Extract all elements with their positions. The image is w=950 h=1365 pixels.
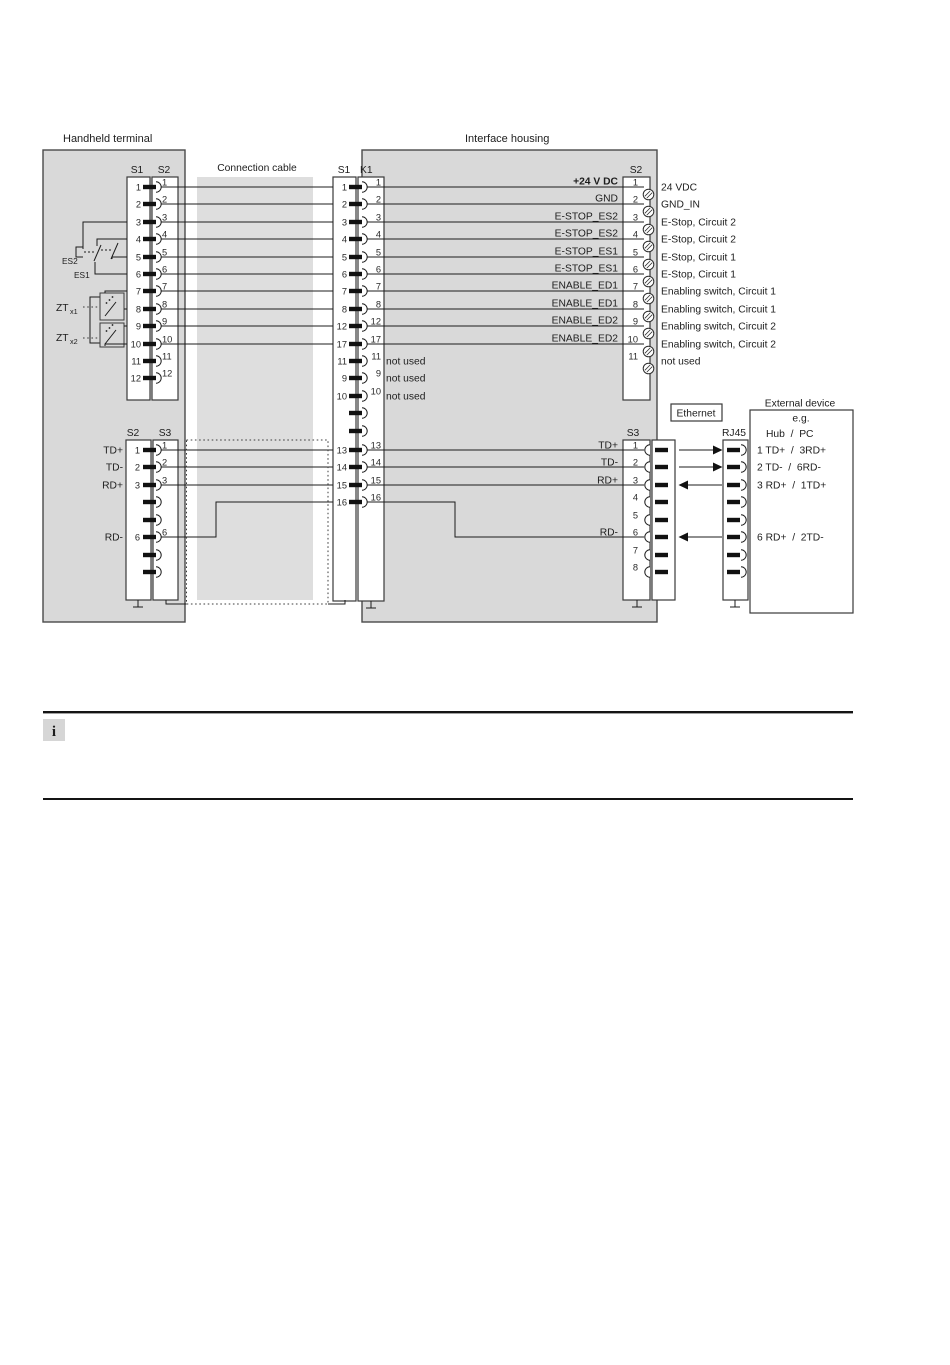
pin-number: 6 [376, 265, 381, 275]
cable-s1-header: S1 [338, 165, 351, 176]
external-pin-row: 1 TD+ / 3RD+ [757, 446, 826, 457]
zt1-label: ZT [56, 303, 69, 314]
pin-stub [143, 465, 156, 469]
pin-number: 8 [633, 300, 638, 310]
hh-s2-header: S2 [158, 165, 171, 176]
pin-stub [349, 272, 362, 276]
pin-stub [349, 448, 362, 452]
pin-number: 6 [136, 270, 141, 280]
signal-label: RD+ [597, 476, 618, 487]
pin-number: 4 [136, 235, 141, 245]
signal-label: ENABLE_ED2 [552, 334, 619, 345]
pin-number: 17 [337, 340, 347, 350]
terminal-label: Enabling switch, Circuit 1 [661, 287, 776, 298]
pin-number: 11 [131, 357, 141, 367]
pin-stub [349, 202, 362, 206]
pin-number: 6 [162, 265, 167, 275]
pin-number: 8 [162, 300, 167, 310]
pin-stub [349, 465, 362, 469]
signal-label: RD- [105, 533, 123, 544]
external-pin-row: 6 RD+ / 2TD- [757, 533, 824, 544]
pin-number: 10 [371, 387, 381, 397]
terminal-label: not used [661, 357, 701, 368]
ethernet-label: Ethernet [677, 409, 716, 420]
pin-number: 1 [633, 178, 638, 188]
pin-number: 5 [633, 511, 638, 521]
pin-number: 5 [376, 248, 381, 258]
signal-label: TD- [601, 458, 618, 469]
pin-number: 1 [376, 178, 381, 188]
screw-terminal-icon [643, 346, 654, 357]
pin-number: 9 [342, 374, 347, 384]
external-device-box [750, 410, 853, 613]
pin-stub [143, 255, 156, 259]
pin-stub [349, 220, 362, 224]
pin-number: 7 [136, 287, 141, 297]
pin-number: 1 [162, 441, 167, 451]
pin-number: 2 [162, 195, 167, 205]
screw-terminal-icon [643, 276, 654, 287]
if-s2-header: S2 [630, 165, 643, 176]
pin-number: 12 [131, 374, 141, 384]
pin-number: 10 [337, 392, 347, 402]
screw-terminal-icon [643, 328, 654, 339]
pin-stub [143, 324, 156, 328]
screw-terminal-icon [643, 293, 654, 304]
hh-s1-header: S1 [131, 165, 144, 176]
pin-number: 13 [337, 446, 347, 456]
pin-number: 3 [633, 476, 638, 486]
pin-stub [349, 483, 362, 487]
pin-number: 10 [162, 335, 172, 345]
pin-number: 3 [376, 213, 381, 223]
pin-stub [143, 535, 156, 539]
terminal-label: Enabling switch, Circuit 2 [661, 322, 776, 333]
pin-number: 15 [337, 481, 347, 491]
pin-number: 9 [162, 317, 167, 327]
es1-label: ES1 [74, 270, 90, 280]
if-s3-header: S3 [627, 428, 640, 439]
pin-number: 6 [633, 265, 638, 275]
not-used-label: not used [386, 374, 426, 385]
pin-number: 16 [371, 493, 381, 503]
pin-stub [349, 342, 362, 346]
pin-number: 10 [131, 340, 141, 350]
pin-stub [727, 518, 740, 522]
pin-number: 1 [136, 183, 141, 193]
pin-number: 3 [136, 218, 141, 228]
pin-stub [143, 359, 156, 363]
pin-stub [143, 307, 156, 311]
pin-stub [143, 220, 156, 224]
pin-number: 14 [337, 463, 347, 473]
divider-top [43, 711, 853, 713]
zt2-subscript: x2 [70, 337, 78, 346]
pin-number: 3 [162, 476, 167, 486]
screw-terminal-icon [643, 241, 654, 252]
pin-stub [727, 483, 740, 487]
pin-number: 9 [136, 322, 141, 332]
pin-number: 6 [135, 533, 140, 543]
screw-terminal-icon [643, 189, 654, 200]
pin-stub [143, 518, 156, 522]
pin-stub [727, 465, 740, 469]
pin-stub [143, 289, 156, 293]
pin-stub [655, 518, 668, 522]
pin-stub [655, 483, 668, 487]
hub-pc-header: Hub / PC [766, 429, 814, 440]
signal-label: ENABLE_ED1 [552, 299, 619, 310]
pin-number: 4 [376, 230, 381, 240]
pin-stub [655, 553, 668, 557]
pin-number: 12 [162, 369, 172, 379]
pin-number: 1 [162, 178, 167, 188]
signal-label: TD+ [103, 446, 123, 457]
pin-number: 8 [136, 305, 141, 315]
pin-number: 10 [628, 335, 638, 345]
pin-stub [143, 483, 156, 487]
pin-number: 7 [376, 282, 381, 292]
external-pin-row: 3 RD+ / 1TD+ [757, 481, 826, 492]
signal-label: ENABLE_ED1 [552, 281, 619, 292]
pin-number: 2 [633, 458, 638, 468]
not-used-label: not used [386, 357, 426, 368]
signal-label: E-STOP_ES1 [555, 247, 619, 258]
terminal-label: 24 VDC [661, 183, 698, 194]
pin-number: 3 [342, 218, 347, 228]
pin-number: 9 [633, 317, 638, 327]
ethernet-direction-arrows [679, 446, 723, 542]
pin-stub [349, 500, 362, 504]
terminal-label: E-Stop, Circuit 1 [661, 270, 736, 281]
interface-housing-title: Interface housing [465, 133, 549, 145]
pin-number: 4 [633, 230, 638, 240]
pin-number: 8 [633, 563, 638, 573]
hh-eth-s2-header: S2 [127, 428, 140, 439]
pin-number: 7 [162, 282, 167, 292]
signal-label: TD- [106, 463, 123, 474]
terminal-label: E-Stop, Circuit 1 [661, 253, 736, 264]
external-device-title: External device [765, 399, 836, 410]
pin-stub [349, 394, 362, 398]
zt2-label: ZT [56, 333, 69, 344]
pin-number: 11 [371, 352, 381, 362]
signal-label: E-STOP_ES2 [555, 229, 619, 240]
if-k1-header: K1 [360, 165, 373, 176]
pin-number: 2 [376, 195, 381, 205]
external-pin-row: 2 TD- / 6RD- [757, 463, 821, 474]
signal-label: ENABLE_ED2 [552, 316, 619, 327]
pin-stub [143, 272, 156, 276]
pin-stub [349, 255, 362, 259]
pin-stub [143, 448, 156, 452]
pin-stub [143, 376, 156, 380]
arrow-right-icon [713, 463, 723, 472]
pin-stub [349, 429, 362, 433]
es2-label: ES2 [62, 256, 78, 266]
pin-number: 8 [376, 300, 381, 310]
pin-number: 3 [135, 481, 140, 491]
pin-number: 2 [633, 195, 638, 205]
pin-number: 11 [162, 352, 172, 362]
pin-number: 4 [342, 235, 347, 245]
pin-stub [655, 535, 668, 539]
pin-stub [349, 185, 362, 189]
pin-number: 15 [371, 476, 381, 486]
pin-number: 5 [136, 253, 141, 263]
divider-bottom [43, 798, 853, 800]
pin-number: 12 [371, 317, 381, 327]
pin-number: 6 [342, 270, 347, 280]
pin-number: 3 [633, 213, 638, 223]
pin-number: 17 [371, 335, 381, 345]
info-note-section: i [43, 711, 853, 800]
terminal-label: Enabling switch, Circuit 2 [661, 340, 776, 351]
pin-number: 2 [136, 200, 141, 210]
pin-number: 2 [135, 463, 140, 473]
pin-stub [143, 553, 156, 557]
external-eg-label: e.g. [792, 414, 809, 425]
not-used-label: not used [386, 392, 426, 403]
pin-stub [349, 237, 362, 241]
arrow-left-icon [679, 533, 689, 542]
pin-stub [349, 307, 362, 311]
pin-stub [143, 570, 156, 574]
pin-number: 13 [371, 441, 381, 451]
pin-stub [655, 570, 668, 574]
signal-label: GND [595, 194, 618, 205]
pin-number: 1 [633, 441, 638, 451]
pin-stub [143, 202, 156, 206]
pin-stub [349, 411, 362, 415]
signal-label: RD+ [102, 481, 123, 492]
pin-number: 3 [162, 213, 167, 223]
signal-label: RD- [600, 528, 618, 539]
pin-number: 4 [162, 230, 167, 240]
pin-number: 7 [342, 287, 347, 297]
pin-number: 8 [342, 305, 347, 315]
pin-stub [349, 359, 362, 363]
pin-number: 2 [342, 200, 347, 210]
pin-number: 6 [162, 528, 167, 538]
signal-label: E-STOP_ES2 [555, 212, 619, 223]
pin-stub [655, 500, 668, 504]
pin-stub [349, 289, 362, 293]
pin-stub [727, 570, 740, 574]
ground-icon [730, 600, 740, 607]
pin-number: 11 [628, 352, 638, 362]
pin-stub [349, 324, 362, 328]
pin-stub [655, 448, 668, 452]
manual-page: i Handheld terminal Interface housing Co… [0, 0, 950, 1365]
signal-label: E-STOP_ES1 [555, 264, 619, 275]
pin-number: 7 [633, 546, 638, 556]
pin-number: 9 [376, 369, 381, 379]
terminal-label: Enabling switch, Circuit 1 [661, 305, 776, 316]
terminal-label: E-Stop, Circuit 2 [661, 218, 736, 229]
screw-terminal-icon [643, 224, 654, 235]
pin-stub [727, 553, 740, 557]
signal-label: TD+ [598, 441, 618, 452]
rj45-header: RJ45 [722, 428, 746, 439]
pin-number: 5 [633, 248, 638, 258]
pin-stub [727, 535, 740, 539]
terminal-label: E-Stop, Circuit 2 [661, 235, 736, 246]
pin-stub [143, 500, 156, 504]
pin-number: 14 [371, 458, 381, 468]
signal-label: +24 V DC [573, 177, 618, 188]
pin-stub [349, 376, 362, 380]
pin-number: 6 [633, 528, 638, 538]
zt1-subscript: x1 [70, 307, 78, 316]
pin-stub [143, 342, 156, 346]
screw-terminal-icon [643, 363, 654, 374]
pin-number: 11 [337, 357, 347, 367]
pin-number: 16 [337, 498, 347, 508]
hh-eth-s3-header: S3 [159, 428, 172, 439]
pin-stub [143, 185, 156, 189]
screw-terminal-icon [643, 206, 654, 217]
pin-stub [727, 500, 740, 504]
pin-number: 12 [337, 322, 347, 332]
terminal-label: GND_IN [661, 200, 700, 211]
pin-number: 7 [633, 282, 638, 292]
handheld-terminal-title: Handheld terminal [63, 133, 152, 145]
pin-number: 4 [633, 493, 638, 503]
arrow-right-icon [713, 446, 723, 455]
pin-number: 1 [135, 446, 140, 456]
arrow-left-icon [679, 481, 689, 490]
pin-number: 2 [162, 458, 167, 468]
pin-stub [655, 465, 668, 469]
pin-stub [727, 448, 740, 452]
connection-cable-title: Connection cable [217, 163, 297, 174]
screw-terminal-icon [643, 311, 654, 322]
pin-number: 5 [342, 253, 347, 263]
pin-number: 1 [342, 183, 347, 193]
info-icon: i [52, 724, 56, 740]
pin-stub [143, 237, 156, 241]
screw-terminal-icon [643, 259, 654, 270]
pin-number: 5 [162, 248, 167, 258]
